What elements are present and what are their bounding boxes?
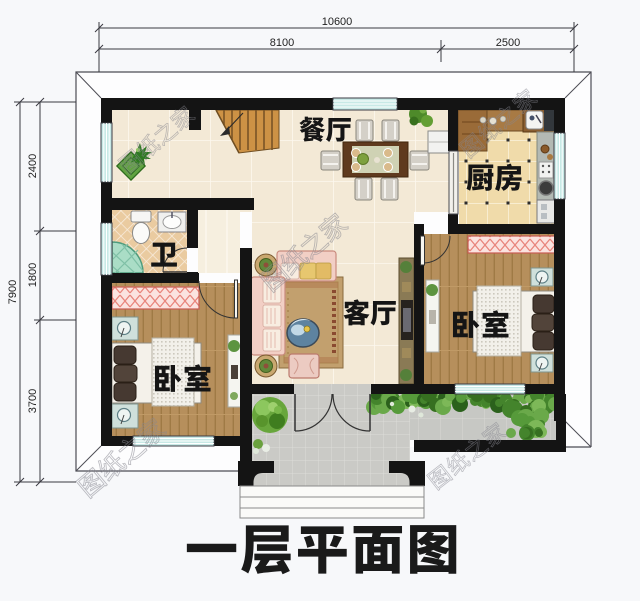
svg-text:2500: 2500 <box>496 37 520 49</box>
svg-text:2400: 2400 <box>27 154 39 178</box>
svg-text:10600: 10600 <box>322 16 353 28</box>
svg-text:1800: 1800 <box>27 263 39 287</box>
svg-text:3700: 3700 <box>27 389 39 413</box>
svg-text:7900: 7900 <box>7 280 19 304</box>
svg-text:8100: 8100 <box>270 37 294 49</box>
